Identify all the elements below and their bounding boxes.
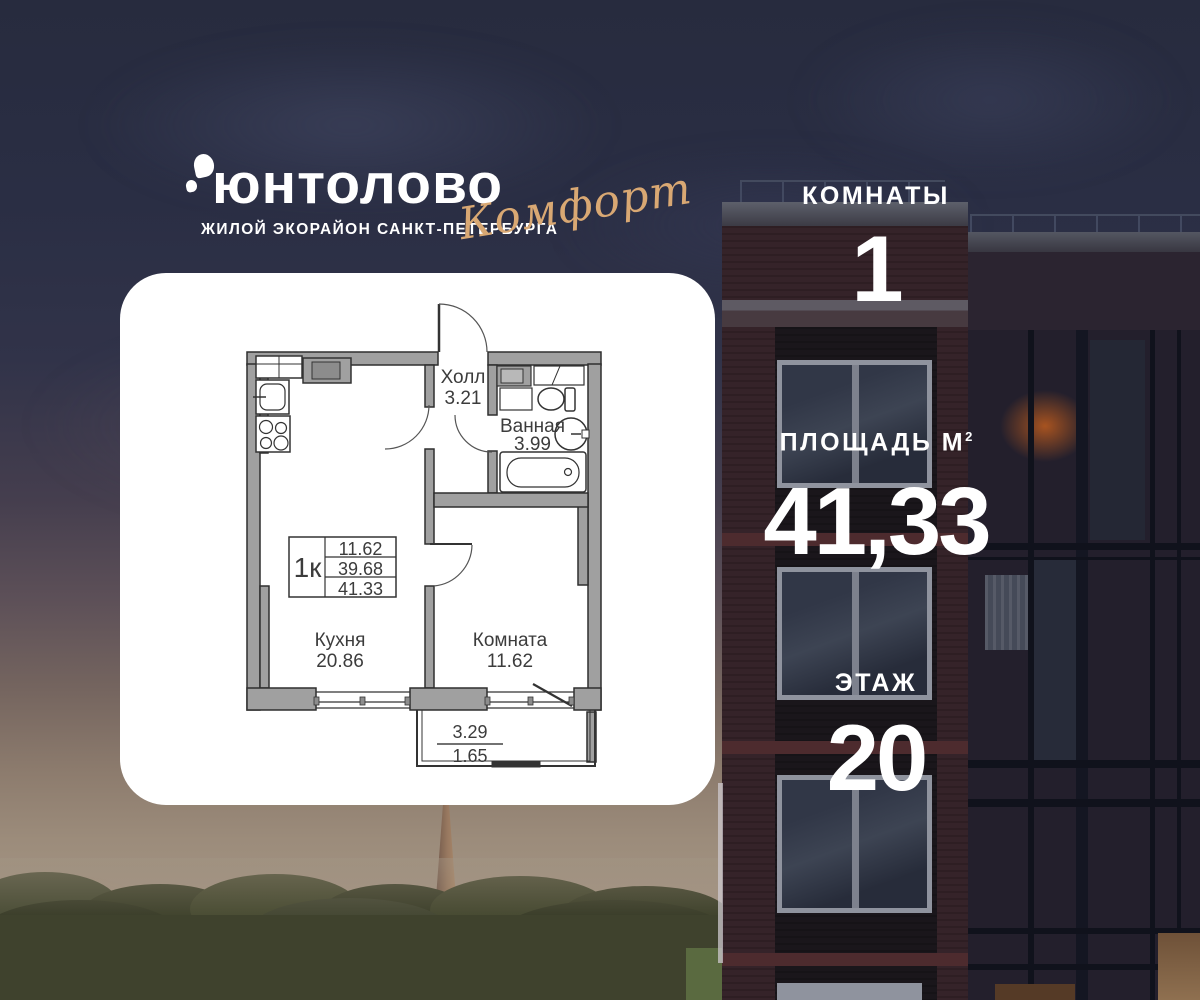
bath-door-arc	[455, 415, 492, 452]
floor-label: ЭТАЖ	[726, 671, 1026, 696]
kitchen-door-arc	[385, 405, 429, 449]
area-superscript: 2	[965, 429, 972, 444]
area-value: 41,33	[726, 474, 1026, 570]
room-area-kitchen: 20.86	[300, 652, 380, 673]
wall-horizontal	[434, 493, 588, 507]
entry-door-arc	[439, 304, 487, 352]
bath-box	[500, 388, 532, 410]
summary-type: 1к	[290, 553, 325, 584]
kitchen-fixtures	[253, 356, 351, 452]
rooms-label: КОМНАТЫ	[726, 184, 1026, 209]
area-label: ПЛОЩАДЬ М2	[726, 430, 1026, 455]
summary-row-1: 11.62	[325, 540, 396, 560]
pilaster	[260, 586, 269, 688]
wall-bottom-c	[574, 688, 601, 710]
balcony-door-open	[533, 684, 572, 706]
wall-bath-left-lower	[488, 451, 497, 493]
doors	[385, 304, 492, 586]
balcony-area-full: 3.29	[430, 723, 510, 743]
room-area-hall: 3.21	[428, 389, 498, 410]
wall-bottom-a	[247, 688, 316, 710]
summary-row-2: 39.68	[325, 560, 396, 580]
floor-value: 20	[726, 711, 1026, 805]
pilaster	[578, 495, 588, 585]
balcony-area-reduced: 1.65	[430, 747, 510, 767]
room-area-room: 11.62	[470, 652, 550, 673]
room-label-kitchen: Кухня	[300, 631, 380, 652]
wall-top-right	[488, 352, 601, 365]
room-area-bath: 3.99	[495, 435, 570, 456]
wall-kitchen-room-stub	[425, 586, 434, 688]
apartment-listing-poster: { "brand": { "logo_text": "юнтолово", "l…	[0, 0, 1200, 1000]
room-door-arc	[434, 545, 472, 586]
wall-bottom-b	[410, 688, 487, 710]
wall-right	[588, 364, 601, 710]
summary-row-3: 41.33	[325, 580, 396, 600]
room-label-room: Комната	[470, 631, 550, 652]
rooms-value: 1	[726, 222, 1026, 316]
room-label-hall: Холл	[428, 368, 498, 389]
wall-kitchen-hall-mid	[425, 449, 434, 544]
toilet	[538, 388, 564, 410]
